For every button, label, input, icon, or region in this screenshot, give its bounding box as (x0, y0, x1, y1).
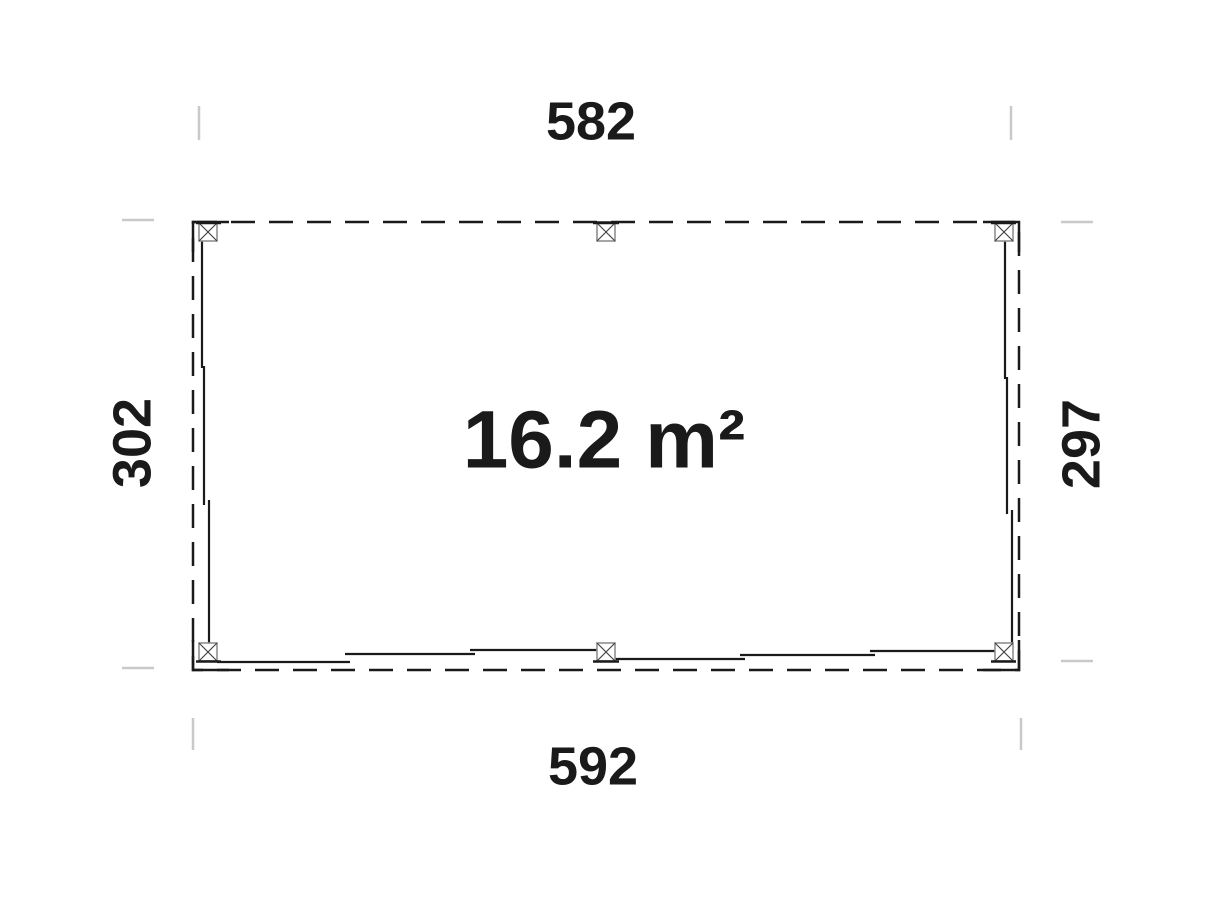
floor-plan-drawing: 582 592 302 297 16.2 m² (0, 0, 1214, 911)
dimension-right-label: 297 (1051, 399, 1111, 489)
post-marker-top-left-icon (196, 223, 221, 241)
area-label: 16.2 m² (463, 395, 746, 486)
post-marker-bottom-left-icon (196, 643, 221, 662)
post-marker-bottom-right-icon (991, 643, 1016, 662)
floor-plan-canvas: 582 592 302 297 16.2 m² (0, 0, 1214, 911)
dimension-top-label: 582 (546, 91, 636, 151)
wall-line-right (1005, 241, 1012, 643)
post-marker-top-right-icon (991, 223, 1016, 241)
wall-line-left (202, 241, 209, 643)
post-marker-top-middle-icon (593, 223, 619, 241)
dimension-left-label: 302 (102, 398, 162, 488)
post-marker-bottom-middle-icon (593, 643, 619, 662)
dimension-bottom-label: 592 (548, 736, 638, 796)
